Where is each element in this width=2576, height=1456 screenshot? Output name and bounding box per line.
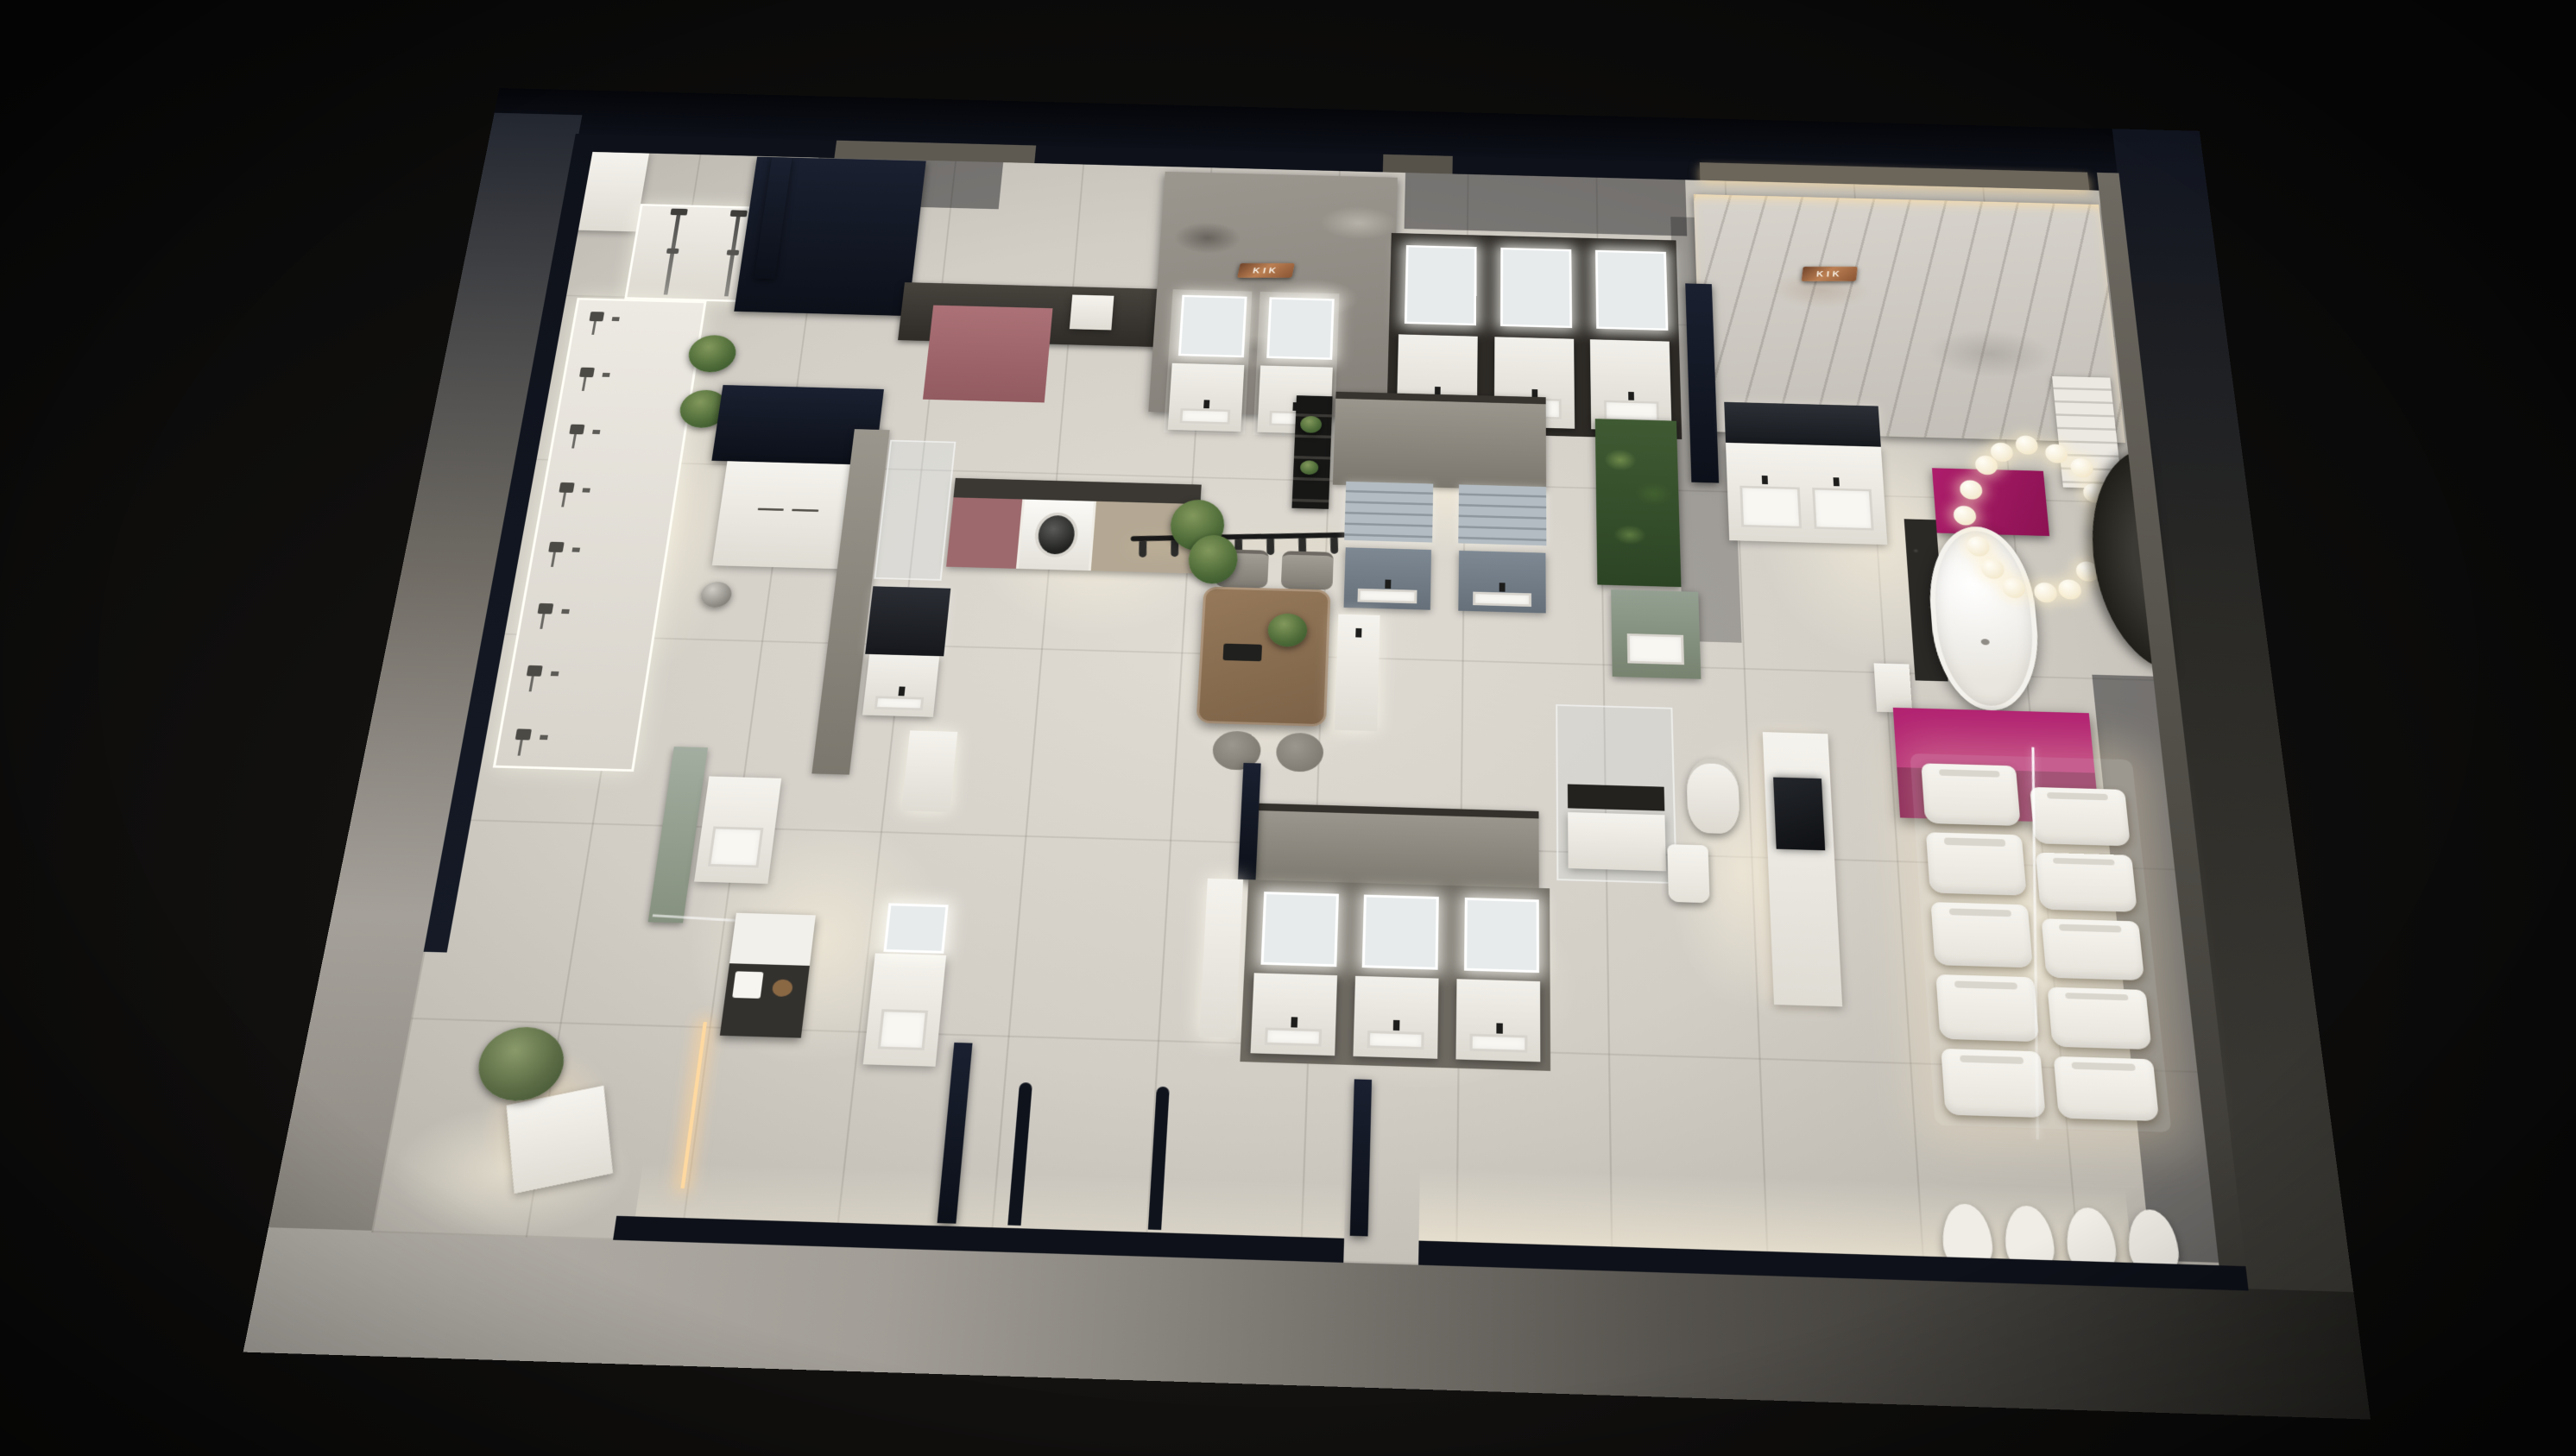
- vanity-bay: [1585, 243, 1676, 436]
- end-pillar: [1199, 879, 1243, 1038]
- wash-basin: [1740, 486, 1802, 529]
- shower-mat-dark: [1568, 784, 1664, 810]
- vanity-base: [1459, 551, 1546, 613]
- tall-grass-planter: [1164, 500, 1248, 640]
- island-vanity-unit: [1338, 481, 1436, 612]
- vertical-garden-wall: [1595, 419, 1682, 587]
- faucet: [1761, 476, 1767, 484]
- display-shelf-ladder: [1292, 395, 1333, 508]
- island-partition-wall: [1333, 392, 1547, 491]
- washing-machine-door: [1037, 514, 1076, 554]
- toilet-single: [1667, 845, 1709, 903]
- towel: [733, 971, 764, 999]
- led-mirror: [1405, 245, 1477, 325]
- shower-mixer-set: [560, 425, 678, 449]
- vanity-base: [1168, 362, 1245, 431]
- toilet: [1921, 763, 2020, 825]
- counter-logo-text-illegible: [792, 508, 818, 511]
- led-mirror: [1595, 249, 1668, 331]
- wall-segment-gray: [1382, 154, 1452, 174]
- toilet: [1936, 974, 2040, 1042]
- faucet: [1385, 580, 1391, 589]
- vanity-base: [1250, 973, 1337, 1056]
- wash-basin: [874, 696, 924, 710]
- vanity-base: [1590, 340, 1672, 432]
- chair: [1280, 551, 1334, 590]
- scene-background: KIK: [0, 0, 2576, 1456]
- display-pedestal: [507, 1085, 614, 1193]
- vanity-base: [1343, 547, 1431, 609]
- lit-tall-cabinet: [901, 731, 958, 812]
- washing-machine: [1019, 499, 1094, 570]
- faucet: [898, 687, 905, 696]
- toilet-column-left: [1921, 763, 2045, 1117]
- shower-mixer-set: [528, 602, 649, 628]
- double-basin-vanity: [1726, 443, 1887, 545]
- shower-mixer-set: [580, 312, 695, 335]
- vanity-wide-mirror: [1724, 402, 1881, 447]
- led-mirror: [1463, 898, 1539, 973]
- toilet: [2041, 918, 2144, 980]
- island-vanity-units: [1338, 481, 1550, 615]
- toilet-display-platform: [1910, 753, 2172, 1132]
- nook-vanity-dark-base: [719, 912, 815, 1037]
- brand-sign-marble-wall: KIK: [1802, 267, 1858, 281]
- vanity-bay: [1246, 885, 1345, 1059]
- wash-basin: [1180, 408, 1230, 425]
- glass-globe-light: [2044, 444, 2068, 463]
- glass-globe-light: [1959, 480, 1983, 500]
- dark-wall-stub: [1349, 1080, 1372, 1237]
- faucet: [1834, 477, 1840, 486]
- laundry-pink-cabinet-front: [923, 306, 1052, 403]
- vanity-bay: [1451, 891, 1545, 1065]
- glass-globe-light: [2070, 457, 2094, 477]
- counter-sink: [1070, 294, 1114, 331]
- shower-mixer-set: [550, 482, 668, 507]
- toilet: [2036, 852, 2137, 912]
- tub-drain: [1981, 639, 1991, 645]
- toilet-column-right: [2030, 787, 2159, 1121]
- vanity-base: [1354, 976, 1439, 1059]
- wash-basin: [1812, 488, 1874, 531]
- tall-grass: [1187, 535, 1239, 585]
- wash-basin: [878, 1009, 928, 1050]
- wash-basin: [1470, 1033, 1527, 1053]
- toilet: [2030, 787, 2131, 846]
- wash-basin: [1627, 633, 1684, 665]
- vanity-base: [862, 654, 939, 717]
- wash-basin: [1357, 589, 1417, 603]
- wash-basin: [708, 827, 763, 868]
- toilet: [1931, 903, 2033, 968]
- shelf-plant: [1300, 460, 1319, 475]
- faucet: [1203, 400, 1209, 408]
- shelf-mirror: [1458, 484, 1546, 545]
- brand-sign-stone-wall: KIK: [1237, 263, 1295, 278]
- faucet: [1500, 583, 1506, 592]
- led-mirror: [1500, 248, 1572, 328]
- lower-vanity-bays: [1240, 879, 1550, 1070]
- hanging-handshower: [1140, 541, 1147, 558]
- faucet: [1393, 1020, 1400, 1031]
- toilet: [1941, 1049, 2045, 1118]
- glass-globe-light: [2015, 435, 2039, 455]
- media-console: [1763, 732, 1843, 1005]
- pedestal-faucet: [1355, 628, 1361, 638]
- toilet: [1926, 832, 2027, 896]
- faucet: [1496, 1023, 1502, 1033]
- vanity-base: [1456, 979, 1541, 1062]
- sage-vanity-unit: [1611, 589, 1701, 679]
- glass-shower-enclosure: [1556, 704, 1676, 884]
- olive-plant: [472, 1025, 569, 1101]
- vanity-bay: [1164, 289, 1253, 434]
- planted-entry-nook: [443, 1022, 647, 1213]
- shower-mixer-set: [517, 665, 640, 691]
- stool: [1275, 732, 1324, 772]
- glass-globe-light: [2034, 582, 2059, 602]
- glass-globe-light: [1980, 558, 2005, 579]
- wash-basin: [1367, 1031, 1424, 1050]
- counter-logo-text-illegible: [757, 507, 784, 510]
- dark-mirror: [866, 586, 950, 656]
- wash-basin: [1264, 1027, 1322, 1047]
- shower-mixer-set: [540, 542, 660, 567]
- nook-vanity: [694, 776, 781, 883]
- island-vanity-unit: [1454, 484, 1550, 616]
- led-mirror: [1261, 892, 1339, 967]
- glass-globe-light: [2057, 579, 2082, 600]
- glass-globe-light: [2002, 577, 2027, 598]
- table-plant: [1267, 613, 1308, 647]
- led-mirror: [1362, 895, 1439, 970]
- toilet: [2054, 1056, 2160, 1121]
- led-mirror: [884, 904, 948, 954]
- faucet: [1291, 1017, 1297, 1027]
- shower-mixer-set: [506, 728, 630, 755]
- toilet: [2047, 986, 2151, 1049]
- tub-side-stool: [1873, 663, 1912, 713]
- led-mirror: [1266, 298, 1335, 360]
- glass-globe-light: [1966, 536, 1990, 557]
- tall-basin-pedestal: [1335, 615, 1380, 732]
- vanity-bay: [1348, 887, 1444, 1062]
- shower-mixer-set: [571, 367, 686, 390]
- showroom-floor: KIK: [371, 134, 2249, 1291]
- nook-vanity: [863, 953, 947, 1067]
- showroom-3d-plan: KIK: [243, 88, 2371, 1420]
- shower-tray: [1568, 812, 1666, 871]
- shower-rail: [663, 210, 681, 295]
- stools-row: [1212, 730, 1324, 772]
- serving-tray: [1222, 644, 1262, 661]
- tv-screen: [1773, 777, 1824, 850]
- led-mirror: [1178, 295, 1247, 357]
- shelf-mirror: [1345, 482, 1434, 543]
- faucet: [1629, 392, 1635, 400]
- wood-stool: [772, 980, 794, 998]
- wash-basin: [1473, 592, 1531, 607]
- shelf-plant: [1300, 415, 1322, 432]
- reception-counter: [712, 462, 858, 570]
- vanity-dark-mirror-unit: [858, 586, 950, 720]
- potted-plant: [686, 335, 739, 373]
